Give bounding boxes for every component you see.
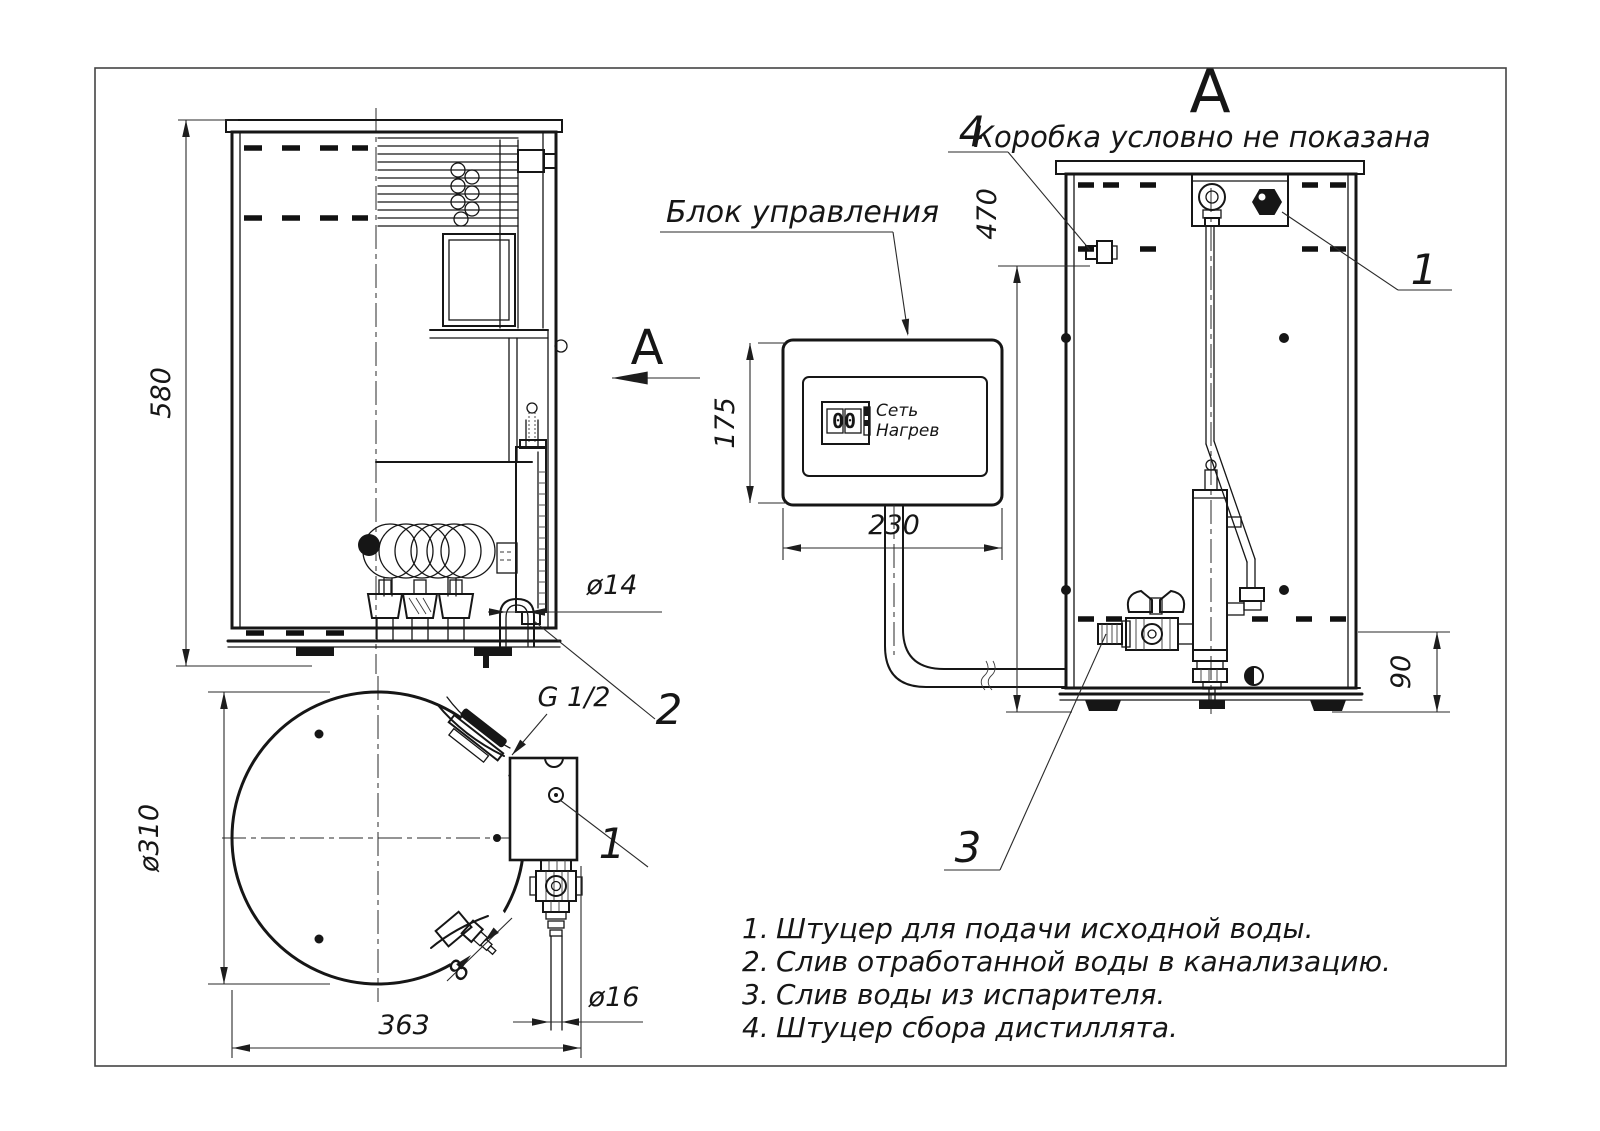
- callout-4-label: 4: [959, 107, 986, 156]
- dim-d16: ø16: [513, 982, 643, 1026]
- front-view: А Коробка условно не показана: [944, 57, 1452, 872]
- callout-3-label: 3: [955, 823, 982, 872]
- indicator-power-label: Сеть: [876, 401, 918, 421]
- display-digits: 00: [832, 409, 856, 433]
- note-3-text: Слив воды из испарителя.: [776, 978, 1165, 1011]
- dim-580: 580: [146, 120, 312, 666]
- note-4-text: Штуцер сбора дистиллята.: [776, 1011, 1178, 1044]
- dim-175: 175: [710, 343, 786, 503]
- supply-valve-block: [510, 758, 582, 1030]
- control-box-label: Блок управления: [666, 195, 939, 230]
- view-a-letter: А: [1189, 57, 1230, 127]
- level-gauge: [497, 403, 546, 624]
- dim-580-label: 580: [146, 367, 177, 419]
- callout-2: 2: [534, 621, 682, 734]
- dim-230: 230: [783, 508, 1002, 560]
- dim-175-label: 175: [710, 397, 741, 449]
- condenser-fins: [378, 138, 518, 226]
- note-3-num: 3.: [742, 978, 769, 1011]
- distillate-fitting: [1086, 241, 1117, 263]
- dim-d16-label: ø16: [588, 982, 640, 1013]
- note-2-text: Слив отработанной воды в канализацию.: [776, 945, 1391, 978]
- bottom-view: G 1/2 1 ø310 363: [134, 676, 648, 1058]
- sewer-drain-spout: [478, 599, 534, 668]
- front-vent-slots: [1078, 185, 1346, 619]
- control-box: Блок управления 00 Сеть Нагрев 175: [660, 195, 1066, 690]
- callout-2-label: 2: [656, 685, 683, 734]
- notes-list: 1. Штуцер для подачи исходной воды. 2. С…: [742, 912, 1391, 1044]
- callout-1-front: 1: [1282, 212, 1452, 294]
- note-2-num: 2.: [742, 945, 769, 978]
- dim-470-label: 470: [972, 188, 1003, 240]
- view-a-subtitle: Коробка условно не показана: [973, 120, 1430, 154]
- dim-d14: ø14: [488, 570, 662, 616]
- section-view: 580 ø14 2 А: [146, 108, 700, 734]
- section-letter: А: [631, 320, 664, 376]
- technical-drawing: 580 ø14 2 А: [0, 0, 1600, 1131]
- top-connection-box: [1192, 174, 1288, 226]
- thread-label-text: G 1/2: [538, 682, 611, 713]
- note-1-num: 1.: [742, 912, 769, 945]
- dim-363-label: 363: [378, 1010, 430, 1041]
- hex-nut: [1252, 189, 1282, 215]
- dim-363: 363: [232, 866, 581, 1058]
- dim-90-label: 90: [1386, 655, 1417, 689]
- callout-1-bottom-label: 1: [599, 819, 626, 868]
- callout-1-front-label: 1: [1411, 245, 1438, 294]
- note-1-text: Штуцер для подачи исходной воды.: [776, 912, 1314, 945]
- display-module: 00: [822, 402, 870, 444]
- distillate-tube: [1206, 226, 1264, 615]
- indicator-heating-label: Нагрев: [876, 421, 939, 441]
- dim-d14-label: ø14: [586, 570, 638, 601]
- dim-d310-label: ø310: [134, 804, 165, 873]
- section-arrow: А: [612, 320, 700, 384]
- dim-470: 470: [972, 188, 1090, 712]
- vent-slots: [244, 148, 368, 633]
- note-4-num: 4.: [742, 1011, 769, 1044]
- drawing-sheet: 580 ø14 2 А: [0, 0, 1600, 1131]
